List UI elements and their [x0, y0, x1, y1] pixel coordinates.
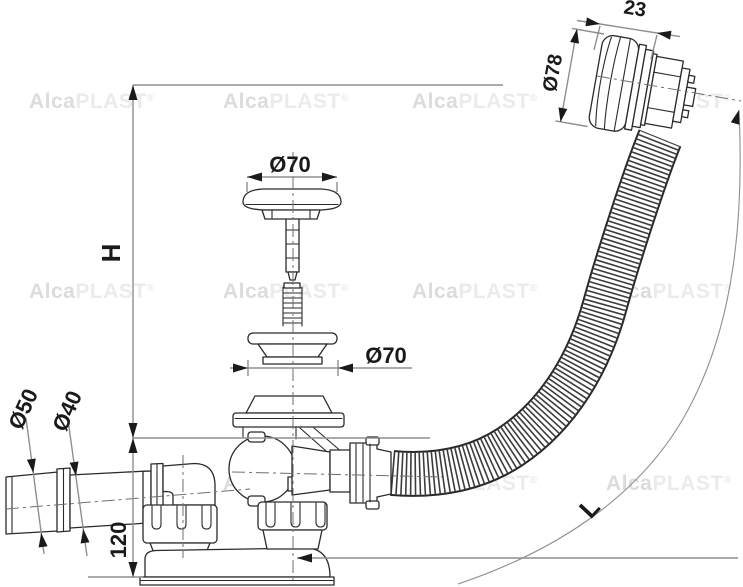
watermark: AlcaPLAST®	[412, 280, 538, 303]
elbow-nut	[143, 505, 217, 543]
bath-drain-technical-drawing: AlcaPLAST® AlcaPLAST® AlcaPLAST® AlcaPLA…	[0, 0, 743, 587]
corrugated-hose	[392, 138, 660, 474]
watermark: AlcaPLAST®	[223, 90, 349, 113]
dim-label-height: H	[96, 244, 126, 263]
side-outlet	[292, 446, 330, 495]
plug-cap	[243, 189, 341, 219]
watermark: AlcaPLAST®	[412, 90, 538, 113]
dim-label-cap-diameter: Ø70	[269, 152, 311, 177]
dim-label-knob-diameter: Ø78	[539, 52, 567, 93]
drain-base	[145, 548, 330, 577]
watermark: AlcaPLAST®	[29, 90, 155, 113]
dim-label-seat-diameter: Ø70	[365, 343, 407, 368]
overflow-head	[588, 34, 703, 144]
dim-label-body-height: 120	[106, 522, 131, 559]
watermark: AlcaPLAST®	[606, 472, 732, 495]
dim-label-pipe-inner: Ø40	[47, 387, 87, 435]
trap-ball	[229, 436, 295, 502]
dim-label-hose-length: L	[573, 492, 606, 524]
watermark: AlcaPLAST®	[29, 280, 155, 303]
technical-drawing-page: AlcaPLAST® AlcaPLAST® AlcaPLAST® AlcaPLA…	[0, 0, 743, 587]
dim-label-knob-width: 23	[622, 0, 647, 22]
dim-label-pipe-outer: Ø50	[3, 385, 43, 433]
tub-flange	[233, 396, 344, 427]
elbow	[143, 464, 217, 554]
